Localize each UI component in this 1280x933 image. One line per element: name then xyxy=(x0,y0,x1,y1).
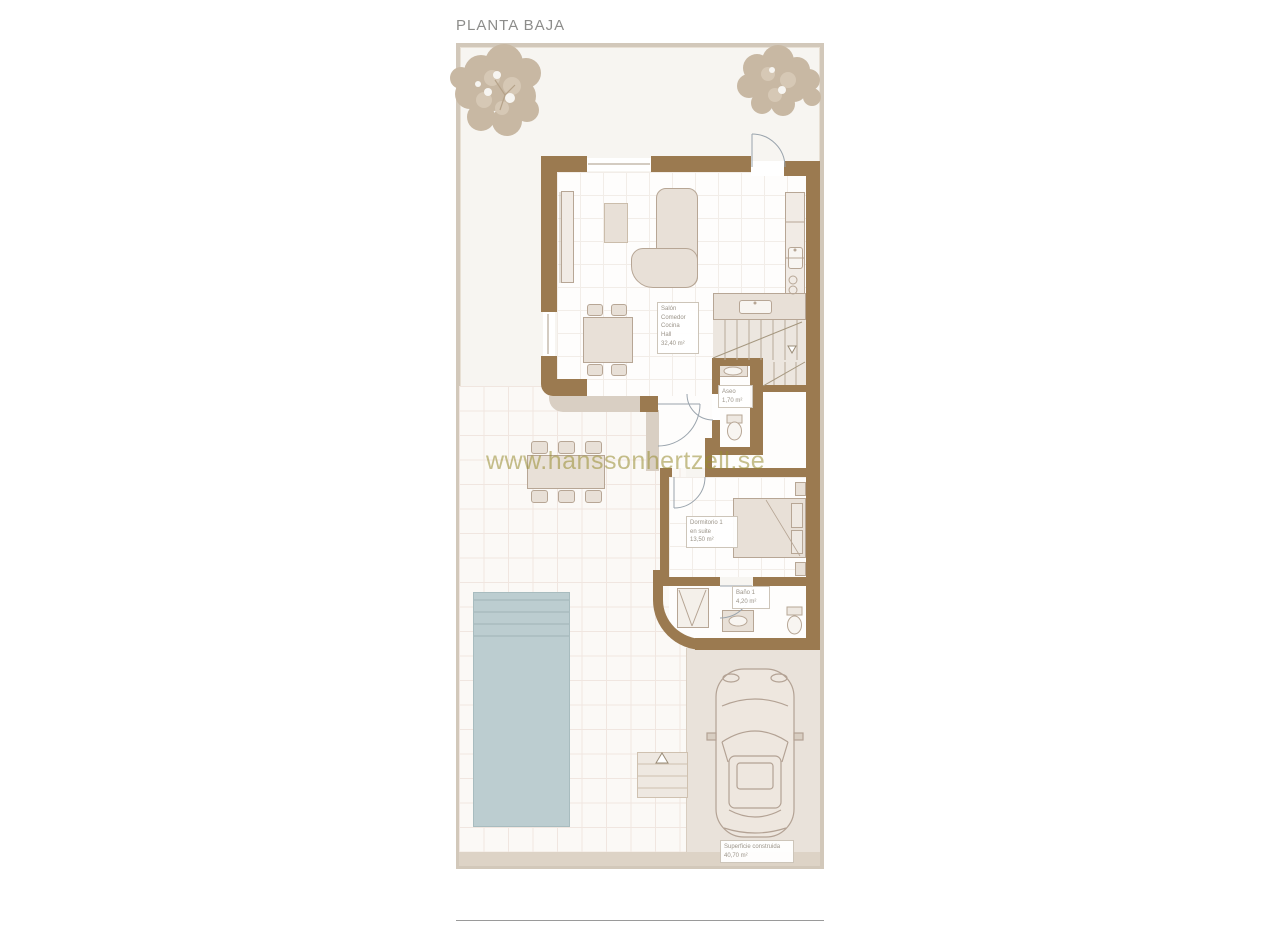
room-name: Hall xyxy=(661,331,695,340)
room-name: Cocina xyxy=(661,322,695,331)
nightstand xyxy=(795,562,806,576)
label-superficie: Superficie construida 40,70 m² xyxy=(720,840,794,863)
dining-table xyxy=(583,317,633,363)
label-dormitorio: Dormitorio 1 en suite 13,50 m² xyxy=(686,516,738,548)
staircase-upper xyxy=(713,320,806,360)
kitchen-sink xyxy=(788,247,803,269)
house-wall xyxy=(640,396,658,412)
room-name: Dormitorio 1 xyxy=(690,519,734,528)
parking-area xyxy=(686,648,820,854)
room-name: Aseo xyxy=(722,388,749,397)
terrace-chair xyxy=(558,490,575,503)
room-area: 32,40 m² xyxy=(661,340,695,349)
exterior-stairs xyxy=(637,752,688,798)
sofa-seat xyxy=(631,248,698,288)
house-wall xyxy=(541,356,557,380)
house-wall xyxy=(695,638,806,650)
island-sink xyxy=(739,300,772,314)
swimming-pool xyxy=(473,592,570,827)
house-wall xyxy=(541,379,587,396)
room-name: Superficie construida xyxy=(724,843,790,852)
dining-chair xyxy=(587,364,603,376)
house-wall xyxy=(651,156,751,172)
label-aseo: Aseo 1,70 m² xyxy=(718,385,753,408)
window xyxy=(543,312,555,356)
pillow xyxy=(791,530,803,554)
room-area: 4,20 m² xyxy=(736,598,766,607)
room-area: 13,50 m² xyxy=(690,536,734,545)
label-bano: Baño 1 4,20 m² xyxy=(732,586,770,609)
dining-chair xyxy=(611,364,627,376)
label-salon: Salón Comedor Cocina Hall 32,40 m² xyxy=(657,302,699,354)
room-area: 40,70 m² xyxy=(724,852,790,861)
room-name: Baño 1 xyxy=(736,589,766,598)
terrace-chair xyxy=(585,490,602,503)
terrace-chair xyxy=(531,490,548,503)
rug xyxy=(604,203,628,243)
bathroom-vanity xyxy=(722,610,754,632)
window xyxy=(587,158,651,171)
room-name: Comedor xyxy=(661,314,695,323)
house-wall xyxy=(541,156,557,312)
house-wall xyxy=(753,577,806,586)
bottom-divider xyxy=(456,920,824,921)
room-name: en suite xyxy=(690,528,734,537)
dining-chair xyxy=(587,304,603,316)
room-area: 1,70 m² xyxy=(722,397,749,406)
stair-wall xyxy=(763,385,806,392)
pillow xyxy=(791,503,803,528)
tv-sideboard xyxy=(561,191,574,283)
staircase-lower xyxy=(763,360,806,385)
nightstand xyxy=(795,482,806,496)
kitchen-counter-right xyxy=(785,192,805,300)
entrance-door-gap xyxy=(751,161,784,176)
dining-chair xyxy=(611,304,627,316)
room-name: Salón xyxy=(661,305,695,314)
terrace-edge-wall xyxy=(549,396,644,412)
house-wall xyxy=(660,468,669,577)
house-wall xyxy=(806,161,820,650)
watermark: www.hanssonhertzell.se xyxy=(486,447,765,476)
page-title: PLANTA BAJA xyxy=(456,17,565,34)
